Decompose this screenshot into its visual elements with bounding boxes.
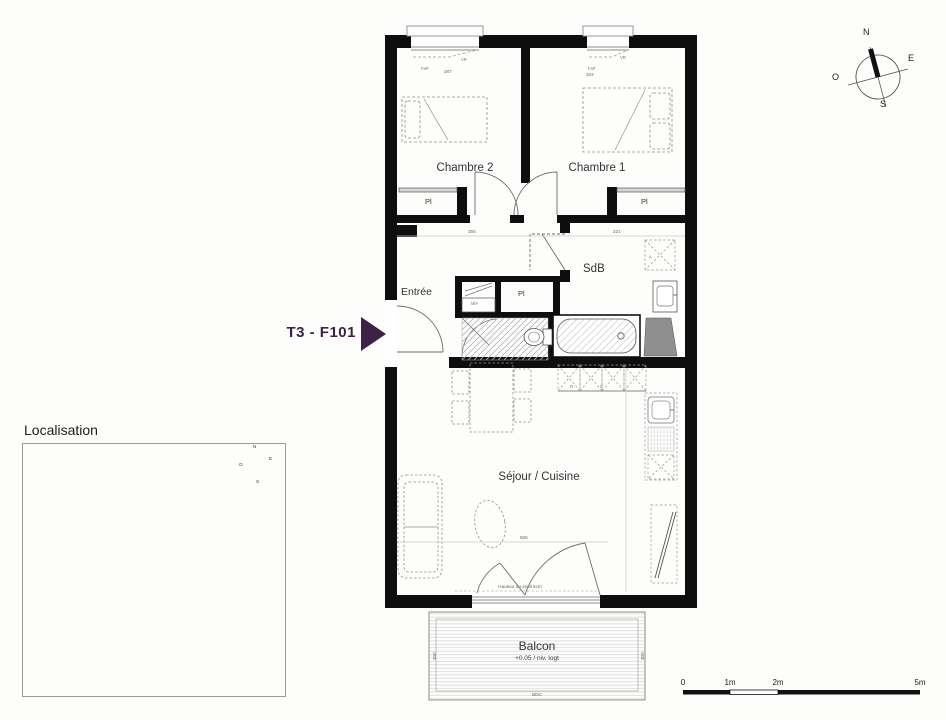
kitchen-drainer: [648, 427, 674, 451]
compass-e: E: [908, 53, 914, 63]
radiator: [651, 505, 677, 583]
toilet: [524, 329, 552, 346]
room-label-chambre2: Chambre 2: [415, 162, 515, 174]
window-label-fap-c1: FaP: [588, 66, 596, 71]
mini-compass-s: S: [256, 479, 259, 484]
technical-shaft: [644, 318, 677, 356]
compass-o: O: [832, 72, 839, 82]
dim-balcon-right: 300: [640, 652, 645, 660]
closet-fronts: [399, 188, 685, 312]
closet-label-mla: MlA: [471, 301, 478, 306]
room-label-chambre1: Chambre 1: [547, 162, 647, 174]
closet-label-pl-hall: Pl: [518, 289, 525, 298]
bed-double-chambre1: [583, 88, 672, 152]
bathtub: [553, 315, 640, 357]
balcon-level-note: +0.05 / niv. logt: [477, 655, 597, 662]
scale-label-2m: 2m: [768, 678, 788, 687]
mini-compass-e: E: [269, 456, 272, 461]
scale-bar: [683, 690, 920, 695]
dim-hall-right: 221: [613, 229, 621, 234]
floorplan-page: Chambre 2 Chambre 1 SdB Entrée Séjour / …: [0, 0, 946, 720]
threshold-note: Hauteur du seuil 5cm: [470, 584, 570, 589]
window-label-vr-c2: VR: [461, 57, 467, 62]
washbasin: [653, 281, 677, 312]
sofa: [398, 475, 442, 578]
room-label-sdb: SdB: [583, 263, 605, 275]
localisation-unit-label: F101: [196, 554, 220, 565]
closet-label-pl-left: Pl: [425, 197, 432, 206]
bed-single-chambre2: [402, 97, 487, 142]
room-label-sejour: Séjour / Cuisine: [459, 471, 619, 483]
scale-label-5m: 5m: [910, 678, 930, 687]
unit-arrow-icon: [361, 317, 386, 351]
kitchen-label-fridge: R: [570, 384, 573, 389]
window-label-fap-c2: FaP: [421, 66, 429, 71]
closet-label-pl-right: Pl: [641, 197, 648, 206]
dim-sejour-width: 555: [520, 535, 528, 540]
dim-balcon-bottom: BDC: [497, 692, 577, 697]
kitchen-label-cooktop: C: [600, 384, 603, 389]
dim-hall-left: 356: [468, 229, 476, 234]
kitchen-appliance: [648, 455, 674, 479]
scale-label-0: 0: [675, 678, 691, 687]
dim-window-c1: 322: [586, 72, 594, 77]
compass-rose-icon: [840, 39, 916, 115]
dining-table: [452, 363, 531, 432]
mini-compass-n: N: [253, 444, 256, 449]
armchair: [471, 498, 509, 550]
compass-n: N: [863, 27, 870, 37]
compass-s: S: [880, 99, 886, 109]
room-label-entree: Entrée: [401, 286, 432, 298]
unit-title: T3 - F101: [256, 324, 356, 341]
window-label-vr-c1: VR: [620, 55, 626, 60]
room-label-balcon: Balcon: [477, 639, 597, 653]
cabinet-label-f: F: [648, 255, 653, 258]
localisation-title: Localisation: [24, 422, 98, 438]
mini-compass-o: O: [239, 462, 243, 467]
scale-label-1m: 1m: [720, 678, 740, 687]
dim-window-c2: 287: [444, 69, 452, 74]
localisation-box: [22, 443, 286, 697]
dim-balcon-left: 300: [432, 652, 437, 660]
dimension-lines: [397, 236, 685, 592]
kitchen-sink: [648, 397, 674, 423]
